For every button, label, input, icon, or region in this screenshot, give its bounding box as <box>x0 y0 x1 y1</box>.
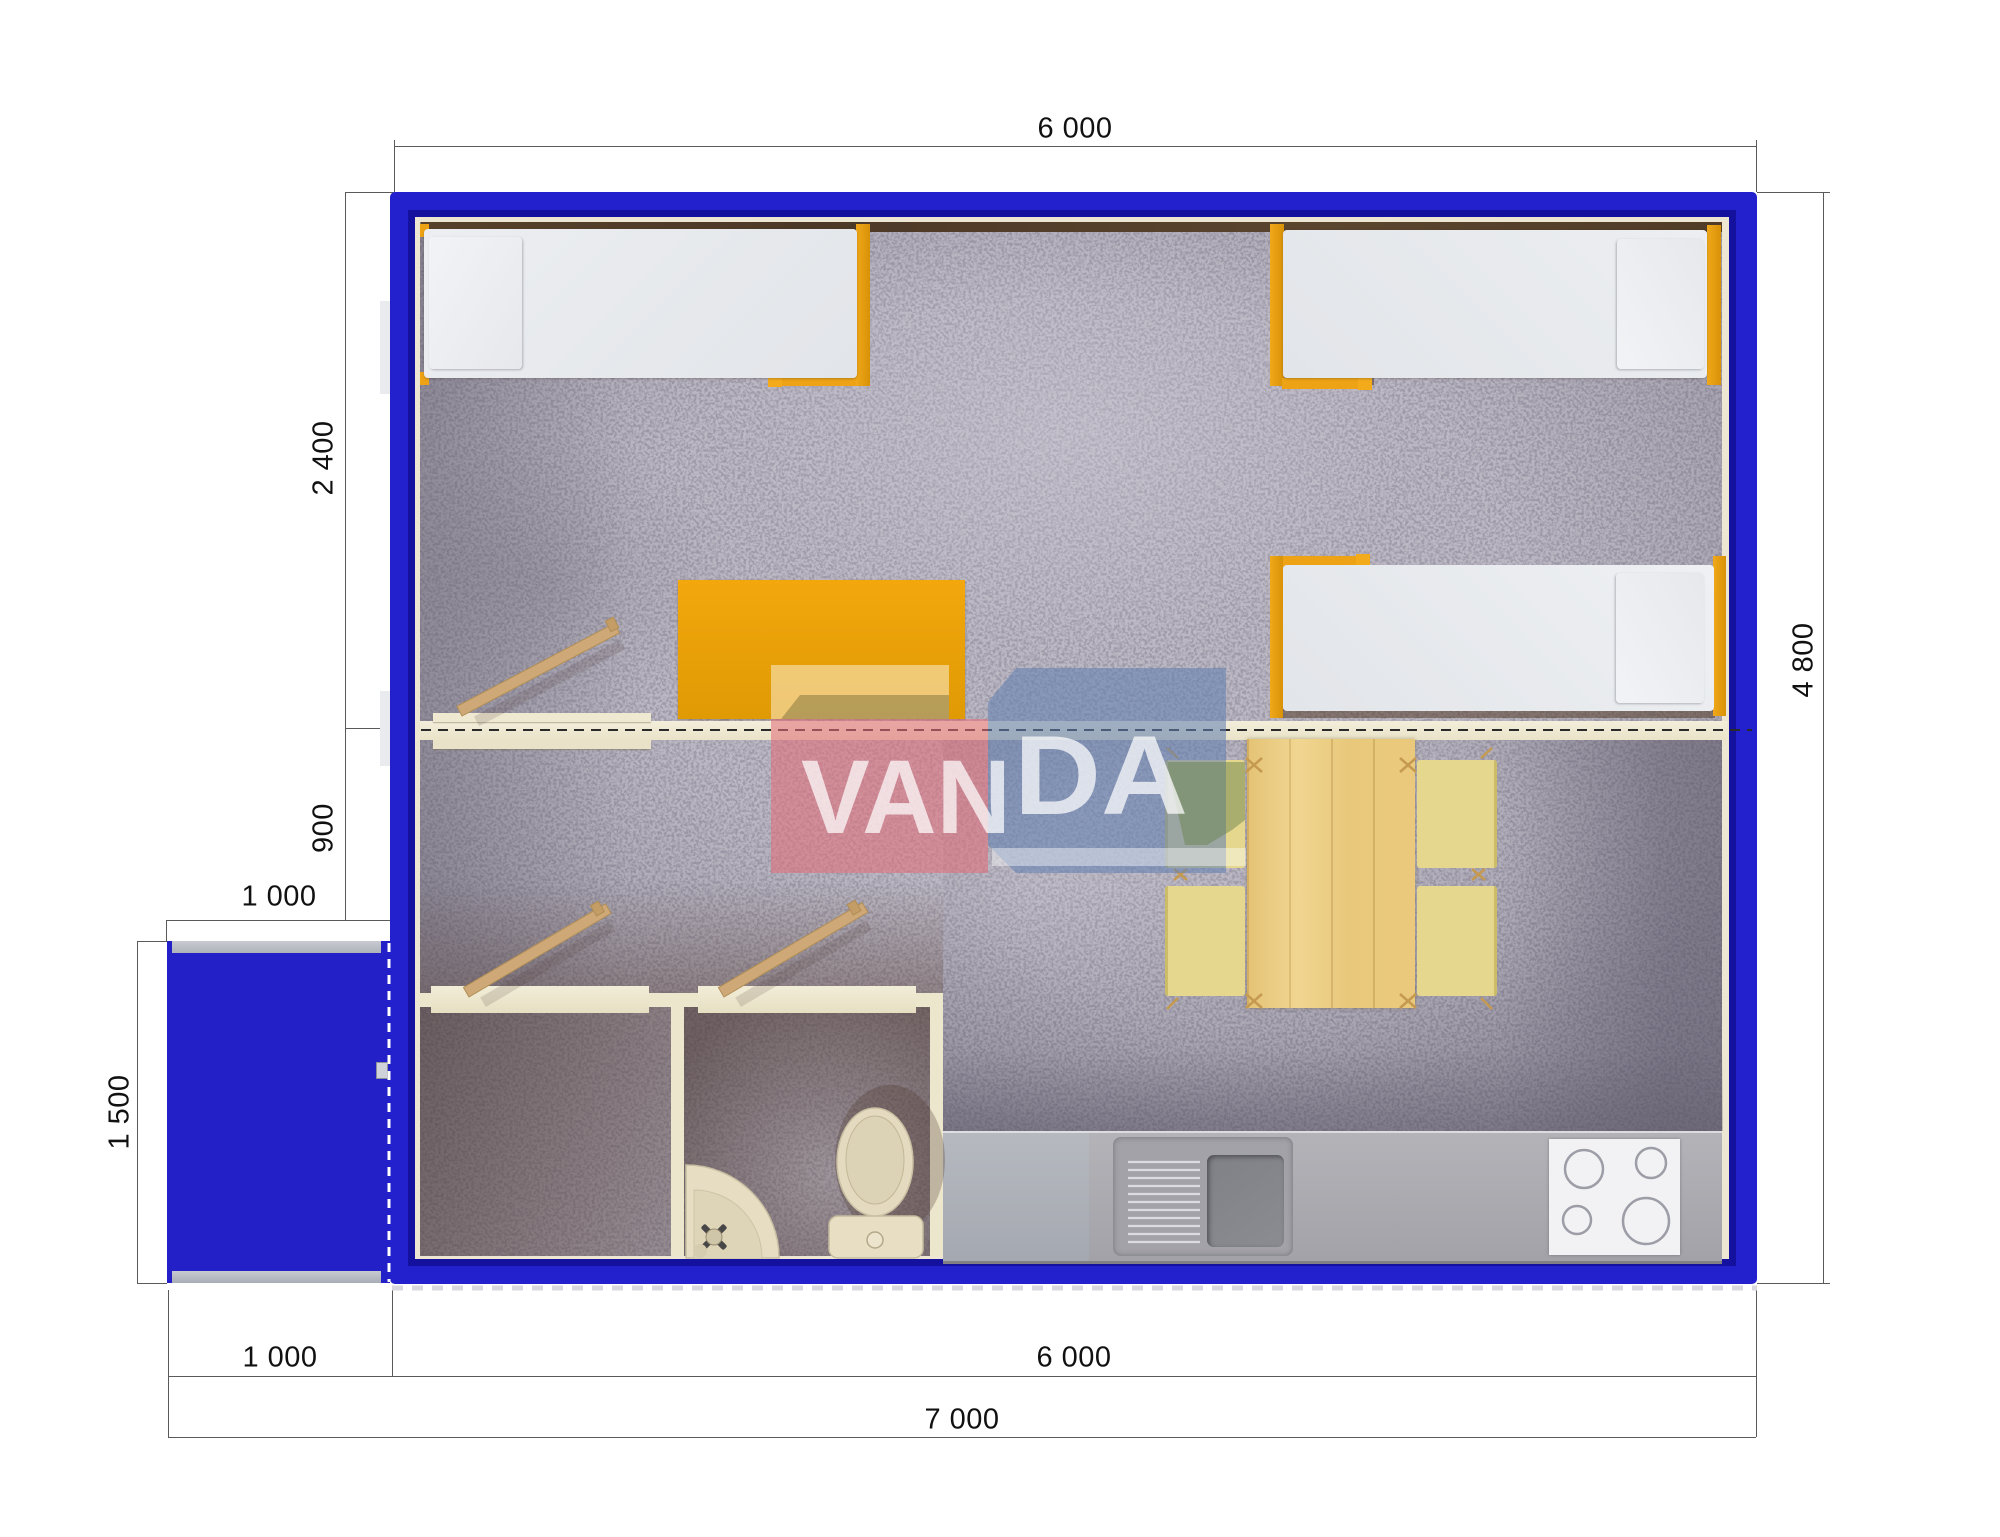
svg-text:DA: DA <box>1014 713 1188 838</box>
svg-text:VAN: VAN <box>801 739 1011 856</box>
